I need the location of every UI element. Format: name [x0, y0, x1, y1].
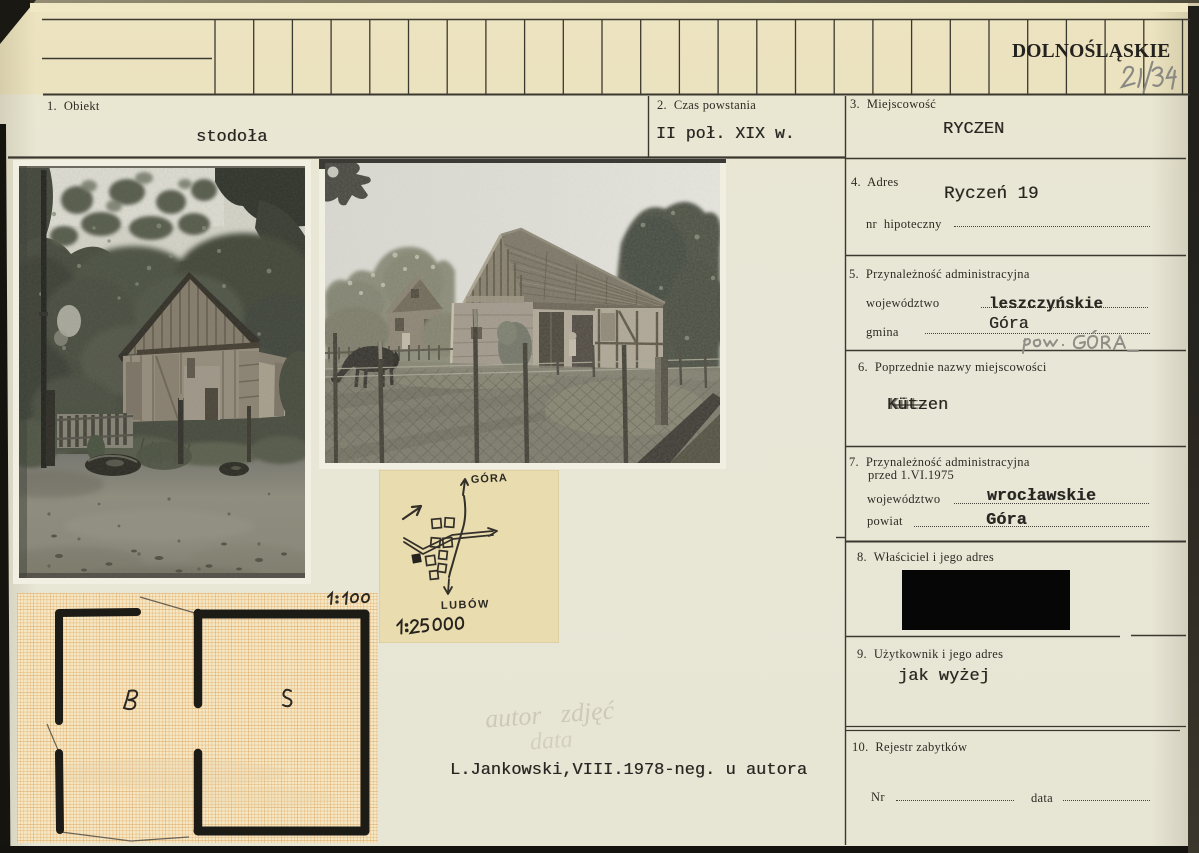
- svg-text:LUBÓW: LUBÓW: [441, 597, 490, 612]
- svg-text:GÓRA: GÓRA: [470, 471, 508, 486]
